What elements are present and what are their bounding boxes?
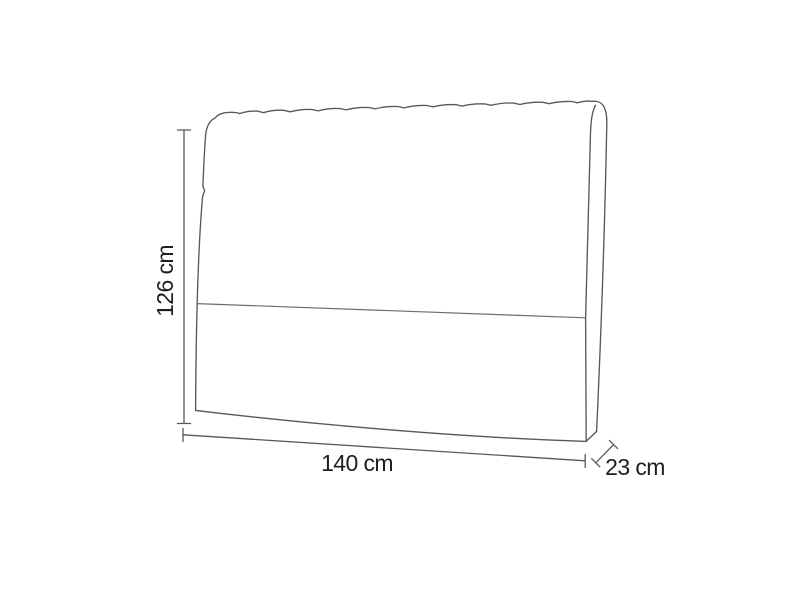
headboard-dimension-diagram: 126 cm 140 cm 23 cm <box>0 0 810 590</box>
headboard-outline <box>196 101 607 441</box>
depth-dimension-label: 23 cm <box>605 454 665 480</box>
headboard-side-edge <box>586 105 596 441</box>
headboard-seam-line <box>197 304 586 318</box>
height-dimension-line <box>178 130 191 424</box>
width-dimension-label: 140 cm <box>321 450 393 476</box>
height-dimension-label: 126 cm <box>152 245 178 317</box>
